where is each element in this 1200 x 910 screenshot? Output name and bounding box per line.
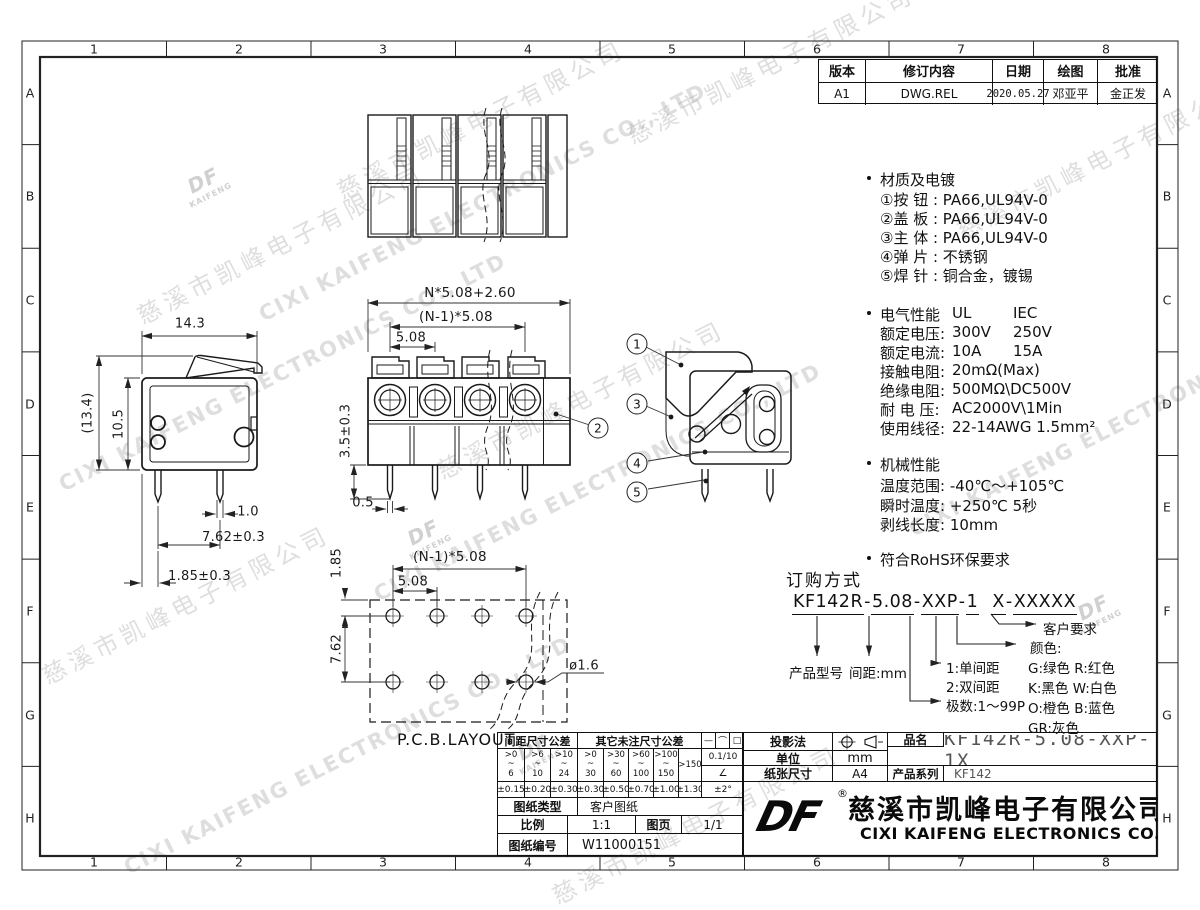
tol-range: >100 ~ 150 (654, 749, 679, 782)
ordering-pitch-label: 间距:mm (849, 662, 907, 682)
revision-header: 日期 (993, 60, 1044, 83)
part-segment: XXXXX (1013, 592, 1077, 615)
drawing-type-label: 图纸类型 (498, 798, 578, 816)
frame-row-label: C (26, 293, 35, 308)
title-block: 投影法 单位 mm 纸张尺寸 A4 品名 KF142R-5.08-XXP-1X … (743, 732, 1157, 856)
bullet-icon (867, 556, 871, 560)
dim-side-width: 14.3 (175, 317, 205, 332)
projection-symbol (833, 733, 888, 751)
electrical-label: 耐 电 压: (880, 399, 940, 420)
tol-value: ±1.00 (654, 782, 679, 798)
electrical-value: 22-14AWG 1.5mm² (952, 418, 1095, 436)
dim-side-height-body: 10.5 (112, 409, 127, 439)
electrical-row: 接触电阻: 20mΩ(Max) (880, 361, 1165, 379)
dim-side-pin-pitch: 7.62±0.3 (202, 530, 265, 545)
ordering-product-model: 产品型号 (789, 662, 843, 682)
part-name-value: KF142R-5.08-XXP-1X (944, 735, 1158, 765)
front-view-dims (350, 299, 570, 513)
unit-label: 单位 (744, 751, 833, 766)
scale-value: 1:1 (568, 816, 636, 834)
dim-pcb-span: (N-1)*5.08 (413, 549, 487, 565)
frame-col-label: 4 (524, 42, 532, 57)
ordering-color-title: 颜色: (1030, 637, 1062, 657)
electrical-label: 绝缘电阻: (880, 380, 945, 401)
electrical-value: 500MΩ\DC500V (952, 380, 1071, 398)
part-separator: - (1006, 592, 1013, 612)
ordering-color-row: G:绿色 R:红色 (1028, 657, 1115, 677)
tol-value: ±0.30 (551, 782, 578, 798)
revision-header: 绘图 (1044, 60, 1098, 83)
material-item: ⑤焊 针 : 铜合金，镀锡 (880, 265, 1033, 286)
plan-view (368, 108, 567, 242)
pcb-dims (341, 565, 604, 682)
part-segment: 1 (966, 592, 980, 615)
ordering-pitch-opt1: 1:单间距 (946, 657, 1000, 677)
part-segment: XXP (921, 592, 959, 615)
frame-row-label: B (26, 189, 35, 204)
tol-value: ±1.30 (679, 782, 702, 798)
unit-value: mm (833, 751, 888, 766)
electrical-title-row: 电气性能 UL IEC (880, 304, 1165, 322)
tol-other-header: 其它未注尺寸公差 (578, 733, 702, 749)
part-separator: - (959, 592, 966, 612)
bullet-icon (867, 461, 871, 465)
ordering-leaders (817, 614, 1036, 701)
frame-row-label: B (1163, 189, 1172, 204)
dim-pcb-offset: 1.85 (330, 548, 345, 578)
electrical-label: 额定电压: (880, 323, 945, 344)
tol-range-last: >150 (679, 749, 702, 782)
electrical-label: 接触电阻: (880, 361, 945, 382)
projection-label: 投影法 (744, 733, 833, 751)
dim-front-pin-thickness: 0.5 (352, 496, 374, 511)
rohs-note: 符合RoHS环保要求 (880, 549, 1010, 570)
tol-flatness: 0.1/10 (702, 749, 744, 766)
part-segment: 5.08 (871, 592, 914, 615)
material-item: ①按 钮 : PA66,UL94V-0 (880, 189, 1048, 210)
electrical-label: 额定电流: (880, 342, 945, 363)
frame-row-label: G (25, 708, 35, 723)
electrical-value: 20mΩ(Max) (952, 361, 1040, 379)
registered-mark: ® (837, 787, 848, 800)
side-view-dims (96, 331, 257, 587)
paper-size-value: A4 (833, 766, 888, 782)
scale-label: 比例 (498, 816, 568, 834)
frame-col-label: 7 (957, 42, 965, 57)
electrical-row: 额定电流: 10A 15A (880, 342, 1165, 360)
dim-side-pin-offset: 1.85±0.3 (168, 569, 231, 584)
company-name-cn: 慈溪市凯峰电子有限公司 (848, 788, 1158, 827)
tol-range: >0 ~ 6 (498, 749, 525, 782)
material-item: ③主 体 : PA66,UL94V-0 (880, 227, 1048, 248)
balloon-5: 5 (627, 482, 648, 503)
part-separator: - (914, 592, 921, 612)
electrical-value: 250V (1013, 323, 1052, 341)
straightness-symbol: — (702, 733, 716, 749)
revision-drawn-by: 邓亚平 (1044, 83, 1098, 106)
frame-row-label: G (1162, 708, 1172, 723)
balloon-3: 3 (627, 394, 648, 415)
electrical-row: 使用线径: 22-14AWG 1.5mm² (880, 418, 1165, 436)
mechanical-title: 机械性能 (880, 454, 940, 475)
tol-pitch-header: 间距尺寸公差 (498, 733, 578, 749)
frame-col-label: 8 (1102, 42, 1110, 57)
ordering-customer: 客户要求 (1043, 618, 1097, 638)
frame-col-label: 1 (90, 42, 98, 57)
mechanical-item: 瞬时温度: +250℃ 5秒 (880, 495, 1037, 516)
series-value: KF142 (944, 766, 1158, 782)
balloon-4: 4 (627, 453, 648, 474)
part-separator (979, 592, 991, 612)
company-name-en: CIXI KAIFENG ELECTRONICS CO.,LTD (860, 824, 1158, 843)
tol-value: ±0.30 (578, 782, 604, 798)
bullet-icon (867, 176, 871, 180)
series-label: 产品系列 (888, 766, 944, 782)
tolerance-table: 间距尺寸公差 其它未注尺寸公差 — ⌒ □ >0 ~ 6 >6 ~ 10 >10… (497, 732, 743, 856)
drawing-number-value: W11000151 (568, 834, 744, 857)
material-item: ②盖 板 : PA66,UL94V-0 (880, 208, 1048, 229)
pcb-layout-view (370, 592, 567, 730)
frame-row-label: A (1163, 86, 1172, 101)
frame-row-label: D (25, 397, 35, 412)
frame-row-label: A (26, 86, 35, 101)
sheet-label: 图页 (636, 816, 682, 834)
revision-content: DWG.REL (866, 83, 993, 106)
frame-col-label: 5 (668, 42, 676, 57)
ordering-title: 订购方式 (786, 566, 862, 591)
electrical-row: 绝缘电阻: 500MΩ\DC500V (880, 380, 1165, 398)
revision-header: 批准 (1098, 60, 1158, 83)
dim-side-height-total: (13.4) (81, 393, 96, 434)
ordering-color-row: O:橙色 B:蓝色 (1028, 697, 1115, 717)
ordering-color-row: K:黑色 W:白色 (1028, 677, 1117, 697)
tol-range: >30 ~ 60 (604, 749, 629, 782)
frame-col-label: 3 (379, 42, 387, 57)
dim-side-pin-width: 1.0 (237, 505, 259, 520)
front-view (368, 350, 588, 499)
mechanical-item: 温度范围: -40℃～+105℃ (880, 475, 1064, 496)
electrical-value: 300V (952, 323, 991, 341)
balloon-1: 1 (627, 334, 648, 355)
part-separator: - (864, 592, 871, 612)
company-block: DF ® 慈溪市凯峰电子有限公司 CIXI KAIFENG ELECTRONIC… (744, 782, 1158, 857)
frame-col-label: 2 (235, 42, 243, 57)
tol-value: ±0.50 (604, 782, 629, 798)
paper-size-label: 纸张尺寸 (744, 766, 833, 782)
material-title: 材质及电镀 (880, 169, 955, 190)
tol-angle-value: ±2° (702, 782, 744, 798)
ordering-part-number: KF142R-5.08-XXP-1 X-XXXXX (792, 592, 1077, 612)
electrical-row: 耐 电 压: AC2000V\1Min (880, 399, 1165, 417)
material-item: ④弹 片 : 不锈钢 (880, 246, 988, 267)
part-name-label: 品名 (888, 733, 944, 747)
frame-row-label: F (26, 604, 33, 619)
dim-front-pitch: 5.08 (396, 331, 426, 346)
frame-row-label: E (1163, 500, 1171, 515)
electrical-col-ul: UL (952, 304, 971, 322)
frame-row-label: F (1163, 604, 1170, 619)
dim-pcb-row-pitch: 7.62 (330, 634, 345, 664)
angle-symbol: ∠ (702, 766, 744, 782)
arc-symbol: ⌒ (716, 733, 730, 749)
dim-pcb-pitch: 5.08 (398, 575, 428, 590)
ordering-pitch-opt2: 2:双间距 (946, 676, 1000, 696)
dim-pcb-hole-dia: ø1.6 (569, 659, 599, 674)
frame-col-label: 6 (813, 42, 821, 57)
revision-header: 版本 (819, 60, 866, 83)
electrical-col-iec: IEC (1013, 304, 1037, 322)
dim-front-pin-length: 3.5±0.3 (339, 404, 354, 458)
tol-value: ±0.70 (629, 782, 654, 798)
tol-range: >0 ~ 30 (578, 749, 604, 782)
drawing-number-label: 图纸编号 (498, 834, 568, 857)
tol-range: >10 ~ 24 (551, 749, 578, 782)
square-symbol: □ (730, 733, 744, 749)
electrical-value: 15A (1013, 342, 1042, 360)
frame-row-label: H (1162, 811, 1171, 826)
first-angle-projection-icon (834, 733, 887, 751)
mechanical-item: 剥线长度: 10mm (880, 514, 998, 535)
drawing-type-value: 客户图纸 (578, 798, 744, 816)
part-segment: KF142R (792, 592, 864, 615)
electrical-value: AC2000V\1Min (952, 399, 1062, 417)
tol-range: >6 ~ 10 (525, 749, 551, 782)
revision-version: A1 (819, 83, 866, 106)
sheet-value: 1/1 (682, 816, 744, 834)
revision-date: 2020.05.27 (993, 83, 1044, 106)
balloon-2: 2 (588, 418, 609, 439)
tol-value: ±0.15 (498, 782, 525, 798)
revision-header: 修订内容 (866, 60, 993, 83)
electrical-value: 10A (952, 342, 981, 360)
frame-col-label: 1 (90, 855, 98, 870)
section-view (646, 347, 791, 501)
bullet-icon (867, 311, 871, 315)
frame-col-label: 2 (235, 855, 243, 870)
electrical-title: 电气性能 (880, 304, 940, 325)
electrical-row: 额定电压: 300V 250V (880, 323, 1165, 341)
frame-row-label: E (26, 500, 34, 515)
part-segment: X (991, 592, 1006, 615)
drawing-sheet: 慈溪市凯峰电子有限公司 CIXI KAIFENG ELECTRONICS CO.… (0, 0, 1200, 910)
revision-approved-by: 金正发 (1098, 83, 1158, 106)
electrical-label: 使用线径: (880, 418, 945, 439)
company-logo: DF (753, 796, 823, 838)
tol-value: ±0.20 (525, 782, 551, 798)
dim-front-total: N*5.08+2.60 (424, 285, 516, 301)
revision-table: 版本 修订内容 日期 绘图 批准 A1 DWG.REL 2020.05.27 邓… (818, 59, 1157, 104)
frame-row-label: H (25, 811, 34, 826)
frame-col-label: 3 (379, 855, 387, 870)
dim-front-span: (N-1)*5.08 (419, 309, 493, 325)
side-view (142, 355, 262, 502)
ordering-poles: 极数:1～99P (946, 695, 1025, 715)
tol-range: >60 ~ 100 (629, 749, 654, 782)
